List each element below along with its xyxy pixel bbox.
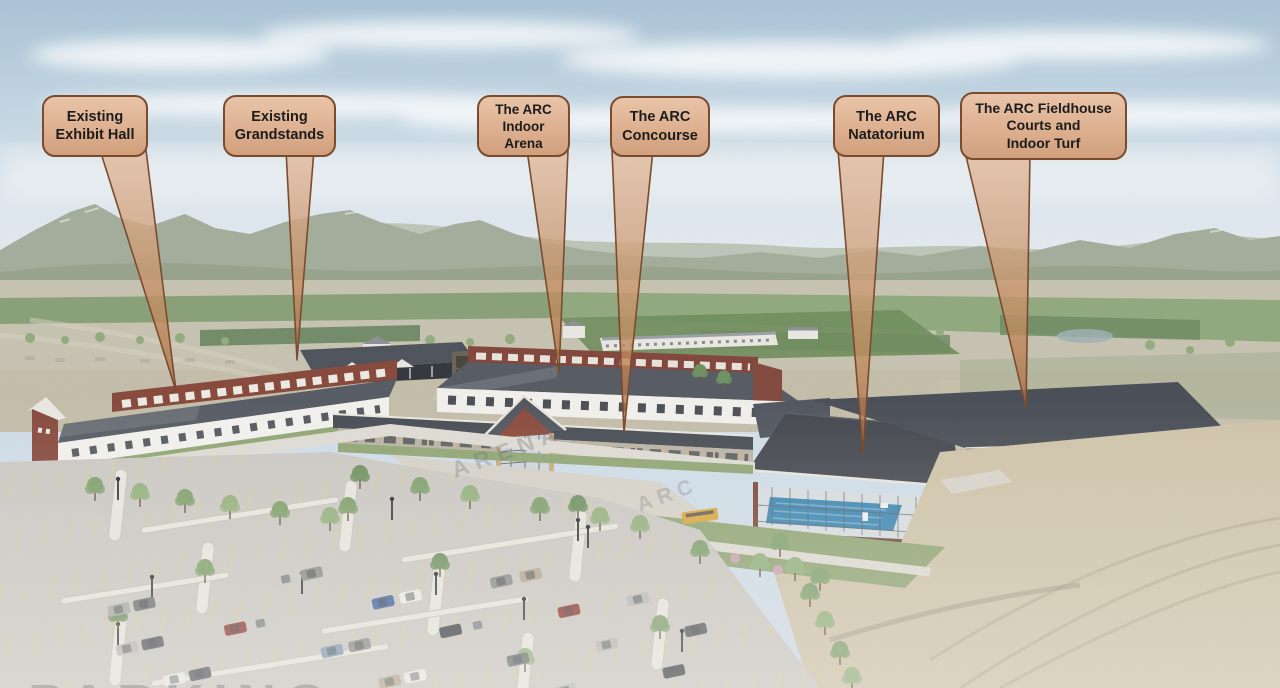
- callout-label: The ARC Indoor Arena: [479, 101, 568, 152]
- callout-label: The ARC Fieldhouse Courts and Indoor Tur…: [962, 100, 1125, 153]
- callout-label: The ARC Natatorium: [835, 108, 938, 145]
- callout-label: The ARC Concourse: [612, 108, 708, 145]
- callout-arc-fieldhouse: The ARC Fieldhouse Courts and Indoor Tur…: [960, 92, 1127, 160]
- rendering-slide: ARENA ARC PARKING Existing Exhibit Hall …: [0, 0, 1280, 688]
- callout-arc-concourse: The ARC Concourse: [610, 96, 710, 157]
- callout-existing-exhibit-hall: Existing Exhibit Hall: [42, 95, 148, 157]
- callout-existing-grandstands: Existing Grandstands: [223, 95, 336, 157]
- callout-arc-indoor-arena: The ARC Indoor Arena: [477, 95, 570, 157]
- callout-label: Existing Exhibit Hall: [44, 108, 146, 145]
- callout-label: Existing Grandstands: [225, 108, 334, 145]
- callout-arc-natatorium: The ARC Natatorium: [833, 95, 940, 157]
